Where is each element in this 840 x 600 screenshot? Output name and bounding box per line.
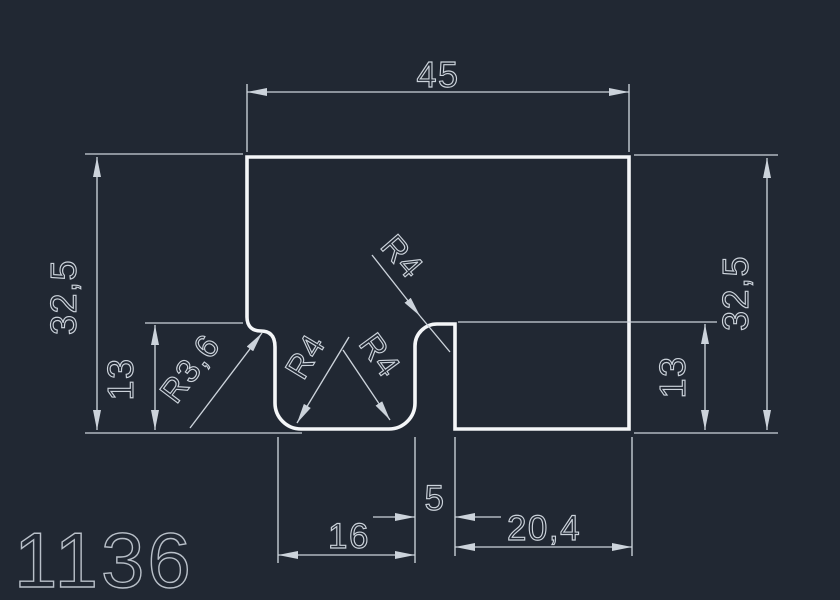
dim-right-step-height-label: 13	[652, 355, 693, 398]
part-number-label: 1136	[14, 516, 194, 600]
dim-top-width-label: 45	[416, 54, 459, 95]
dim-slot-width-label: 5	[425, 479, 446, 518]
dim-left-overall-height-label: 32,5	[43, 259, 84, 335]
dim-right-width-label: 20,4	[507, 509, 581, 548]
cad-canvas[interactable]: 45 32,5 13 R3,6 R4 R4	[0, 0, 840, 600]
dim-tab-width-label: 16	[328, 517, 370, 556]
dim-left-step-height-label: 13	[100, 357, 141, 400]
dim-right-overall-height-label: 32,5	[715, 255, 756, 331]
